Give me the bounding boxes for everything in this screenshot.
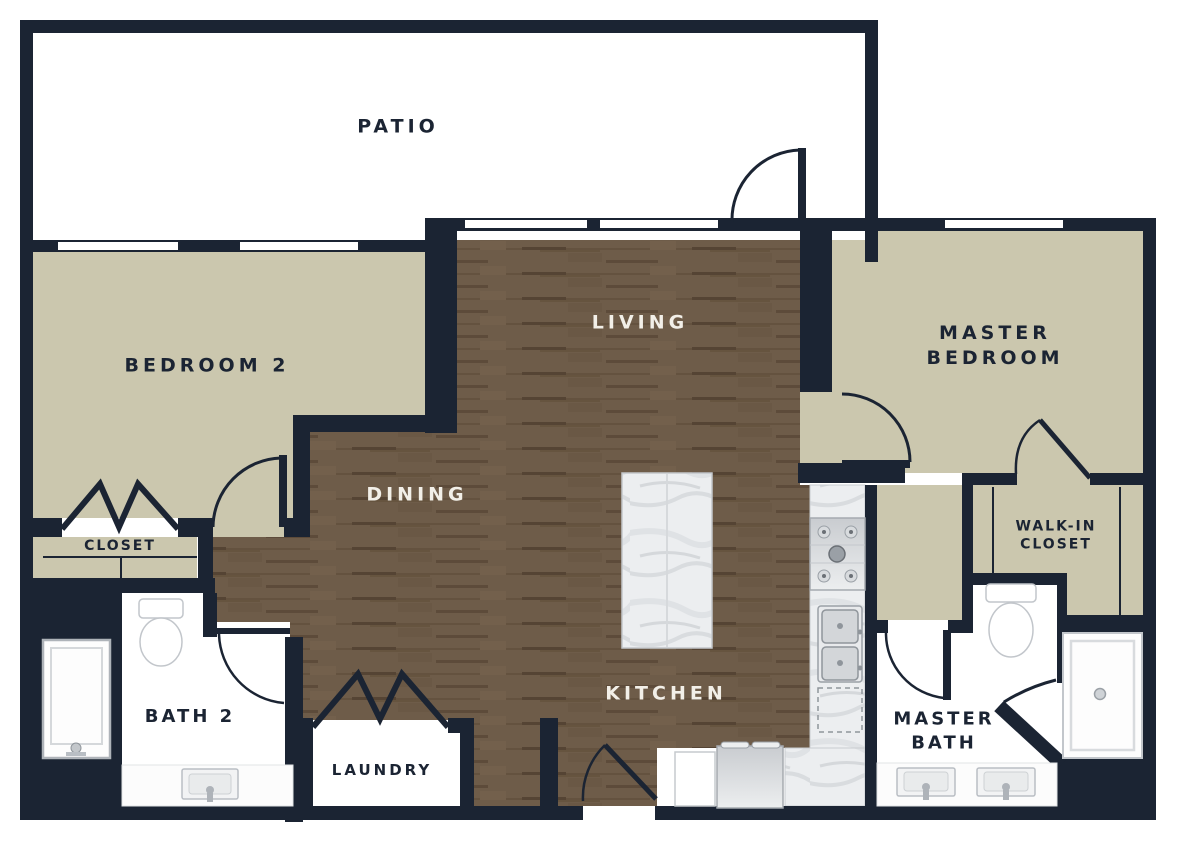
wall-block-bath2-top [33, 593, 122, 640]
floor-plan: PATIO BEDROOM 2 LIVING MASTER BEDROOM DI… [0, 0, 1178, 844]
wall-shower2-right [110, 640, 122, 758]
wall-walkin-top-a [973, 473, 1017, 485]
master-bedroom-threshold [800, 392, 842, 463]
bath2-hall-floor [213, 537, 290, 622]
patio-floor [33, 33, 865, 240]
label-closet: CLOSET [84, 537, 156, 555]
toilet-tank [139, 599, 183, 618]
label-patio: PATIO [357, 114, 439, 139]
master-bedroom-door-leaf [842, 460, 910, 468]
refrigerator [675, 752, 715, 806]
toilet-bowl [989, 603, 1033, 657]
kitchen-floor-upper [290, 637, 800, 722]
wall-kitchen-right [865, 485, 877, 810]
wall-laundry-stub-right [448, 718, 474, 733]
bedroom2-door-leaf [279, 455, 287, 527]
label-master-bath: MASTER BATH [893, 707, 994, 755]
faucet [922, 783, 930, 791]
cooktop [810, 518, 865, 590]
wall-walkin-bottom-left [967, 573, 1067, 585]
faucet [206, 786, 214, 794]
walkin-closet-door-threshold [1017, 473, 1090, 485]
label-laundry: LAUNDRY [332, 761, 432, 781]
wall-top [20, 20, 878, 33]
bath2-shower [43, 640, 110, 758]
wall-block-bath2-bottom [33, 758, 122, 806]
window-bedroom2-a [58, 242, 178, 250]
oven-handle [721, 742, 749, 748]
kitchen-counter-bottom [785, 748, 865, 806]
patio-door-leaf [798, 148, 806, 222]
label-walkin-closet: WALK-IN CLOSET [1016, 518, 1097, 555]
shower-drain [1095, 689, 1106, 700]
window-living-b [600, 220, 718, 228]
faucet [1002, 783, 1010, 791]
toilet-bowl [140, 618, 182, 666]
label-kitchen: KITCHEN [605, 681, 726, 706]
sink-faucet [858, 666, 863, 671]
bedroom2-door-threshold [213, 518, 284, 537]
window-living-a [465, 220, 587, 228]
wall-walkin-top-b [1090, 473, 1143, 485]
entry-floor-left [474, 722, 540, 806]
label-living: LIVING [592, 310, 688, 335]
wall-shower2-left [33, 640, 43, 758]
master-toilet [986, 584, 1036, 657]
label-master-bedroom: MASTER BEDROOM [926, 321, 1063, 371]
wall-entry-stub [540, 718, 558, 820]
label-bedroom2: BEDROOM 2 [125, 353, 290, 378]
kitchen-floor-strip [798, 485, 810, 748]
wall-left [20, 20, 33, 820]
entry-floor [558, 722, 657, 806]
dining-floor-lower [290, 537, 800, 637]
range-oven [717, 742, 783, 808]
wall-bedroom2-bottom-a [33, 518, 62, 537]
wall-step [293, 415, 457, 432]
bath2-toilet [139, 599, 183, 666]
master-bath-door-threshold [888, 620, 948, 633]
master-bath-door-leaf [943, 630, 951, 700]
wall-toilet-nook-left [962, 473, 973, 633]
window-bedroom2-b [240, 242, 358, 250]
window-master-bedroom [945, 220, 1063, 228]
wall-right [1143, 218, 1156, 820]
wall-block-below-shower [1057, 758, 1143, 806]
bath2-door-leaf [217, 628, 290, 634]
master-shower [1063, 633, 1142, 758]
shower-drain [71, 743, 81, 753]
label-dining: DINING [366, 482, 467, 507]
wall-laundry-right [460, 733, 474, 810]
wall-masterbath-door-left [877, 620, 888, 633]
wall-bedroom2-bottom-c [284, 518, 310, 537]
kitchen-double-sink [818, 606, 863, 682]
bath2-vanity [122, 765, 293, 806]
wall-closet-bottom [20, 578, 215, 593]
oven-handle [752, 742, 780, 748]
toilet-tank [986, 584, 1036, 602]
shower-faucet [66, 752, 86, 756]
wall-laundry-left [303, 718, 313, 820]
wall-bath2-door-left [203, 593, 217, 637]
master-hallway-floor [877, 485, 962, 620]
wall-living-master [800, 231, 832, 392]
sink-faucet [858, 630, 863, 635]
master-vanity [877, 763, 1057, 806]
wall-bedroom2-right-upper [425, 218, 457, 433]
entry-door-threshold [583, 806, 655, 831]
wall-walkin-bottom-right [1057, 615, 1143, 633]
label-bath2: BATH 2 [145, 705, 235, 729]
cooktop-knob [829, 546, 845, 562]
